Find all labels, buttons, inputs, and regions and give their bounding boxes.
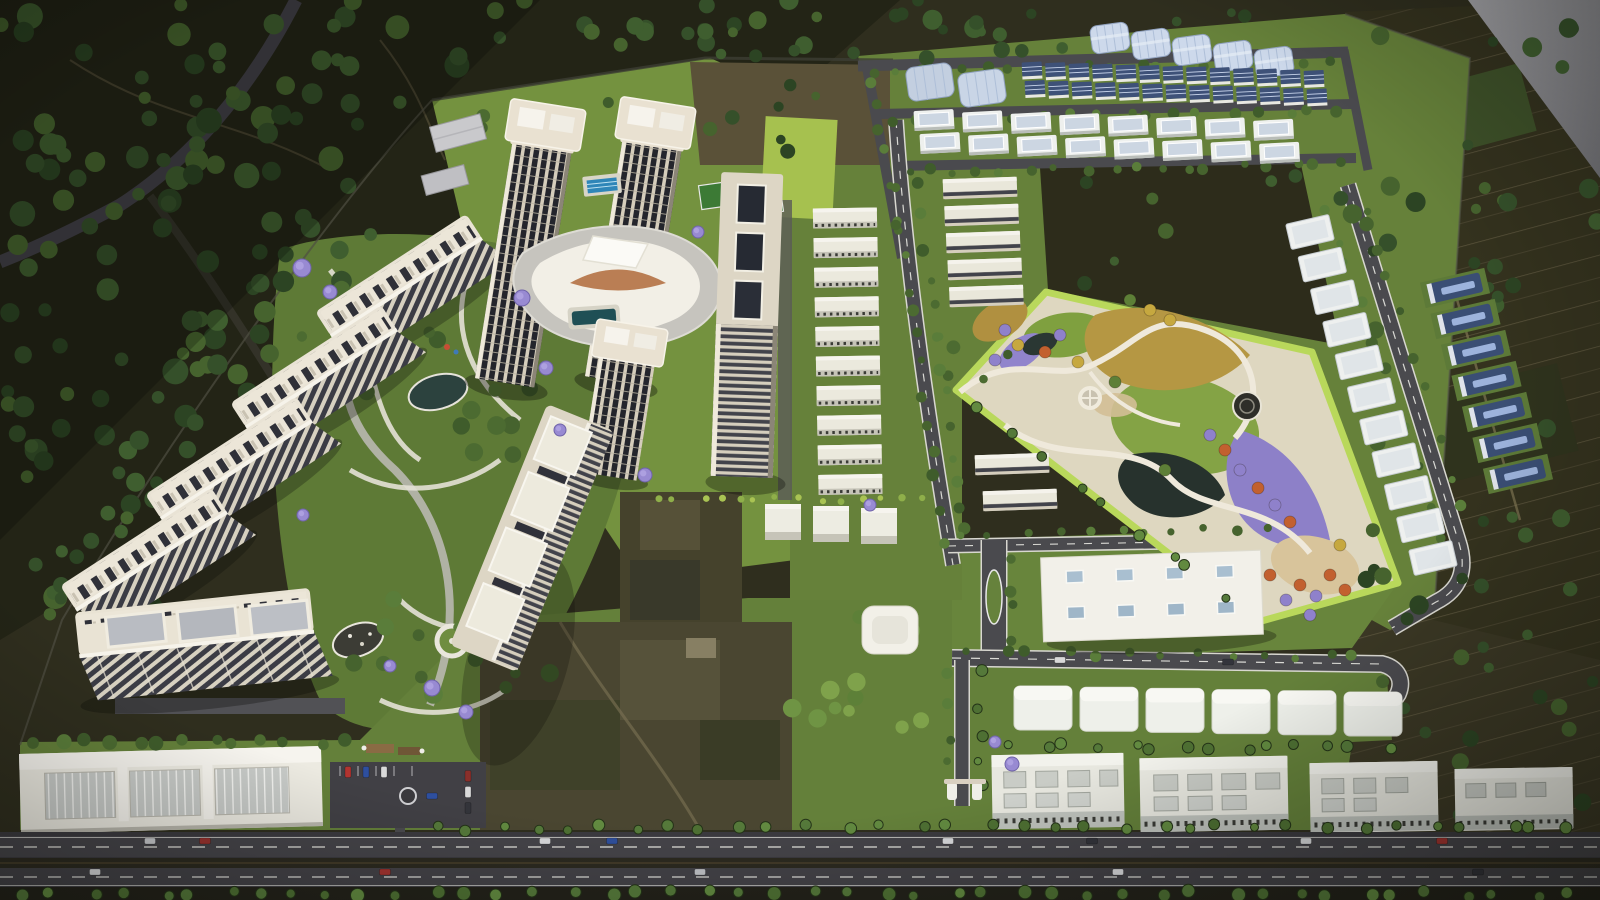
vignette [0, 0, 1600, 900]
township-masterplan-render [0, 0, 1600, 900]
aerial-render-stage [0, 0, 1600, 900]
